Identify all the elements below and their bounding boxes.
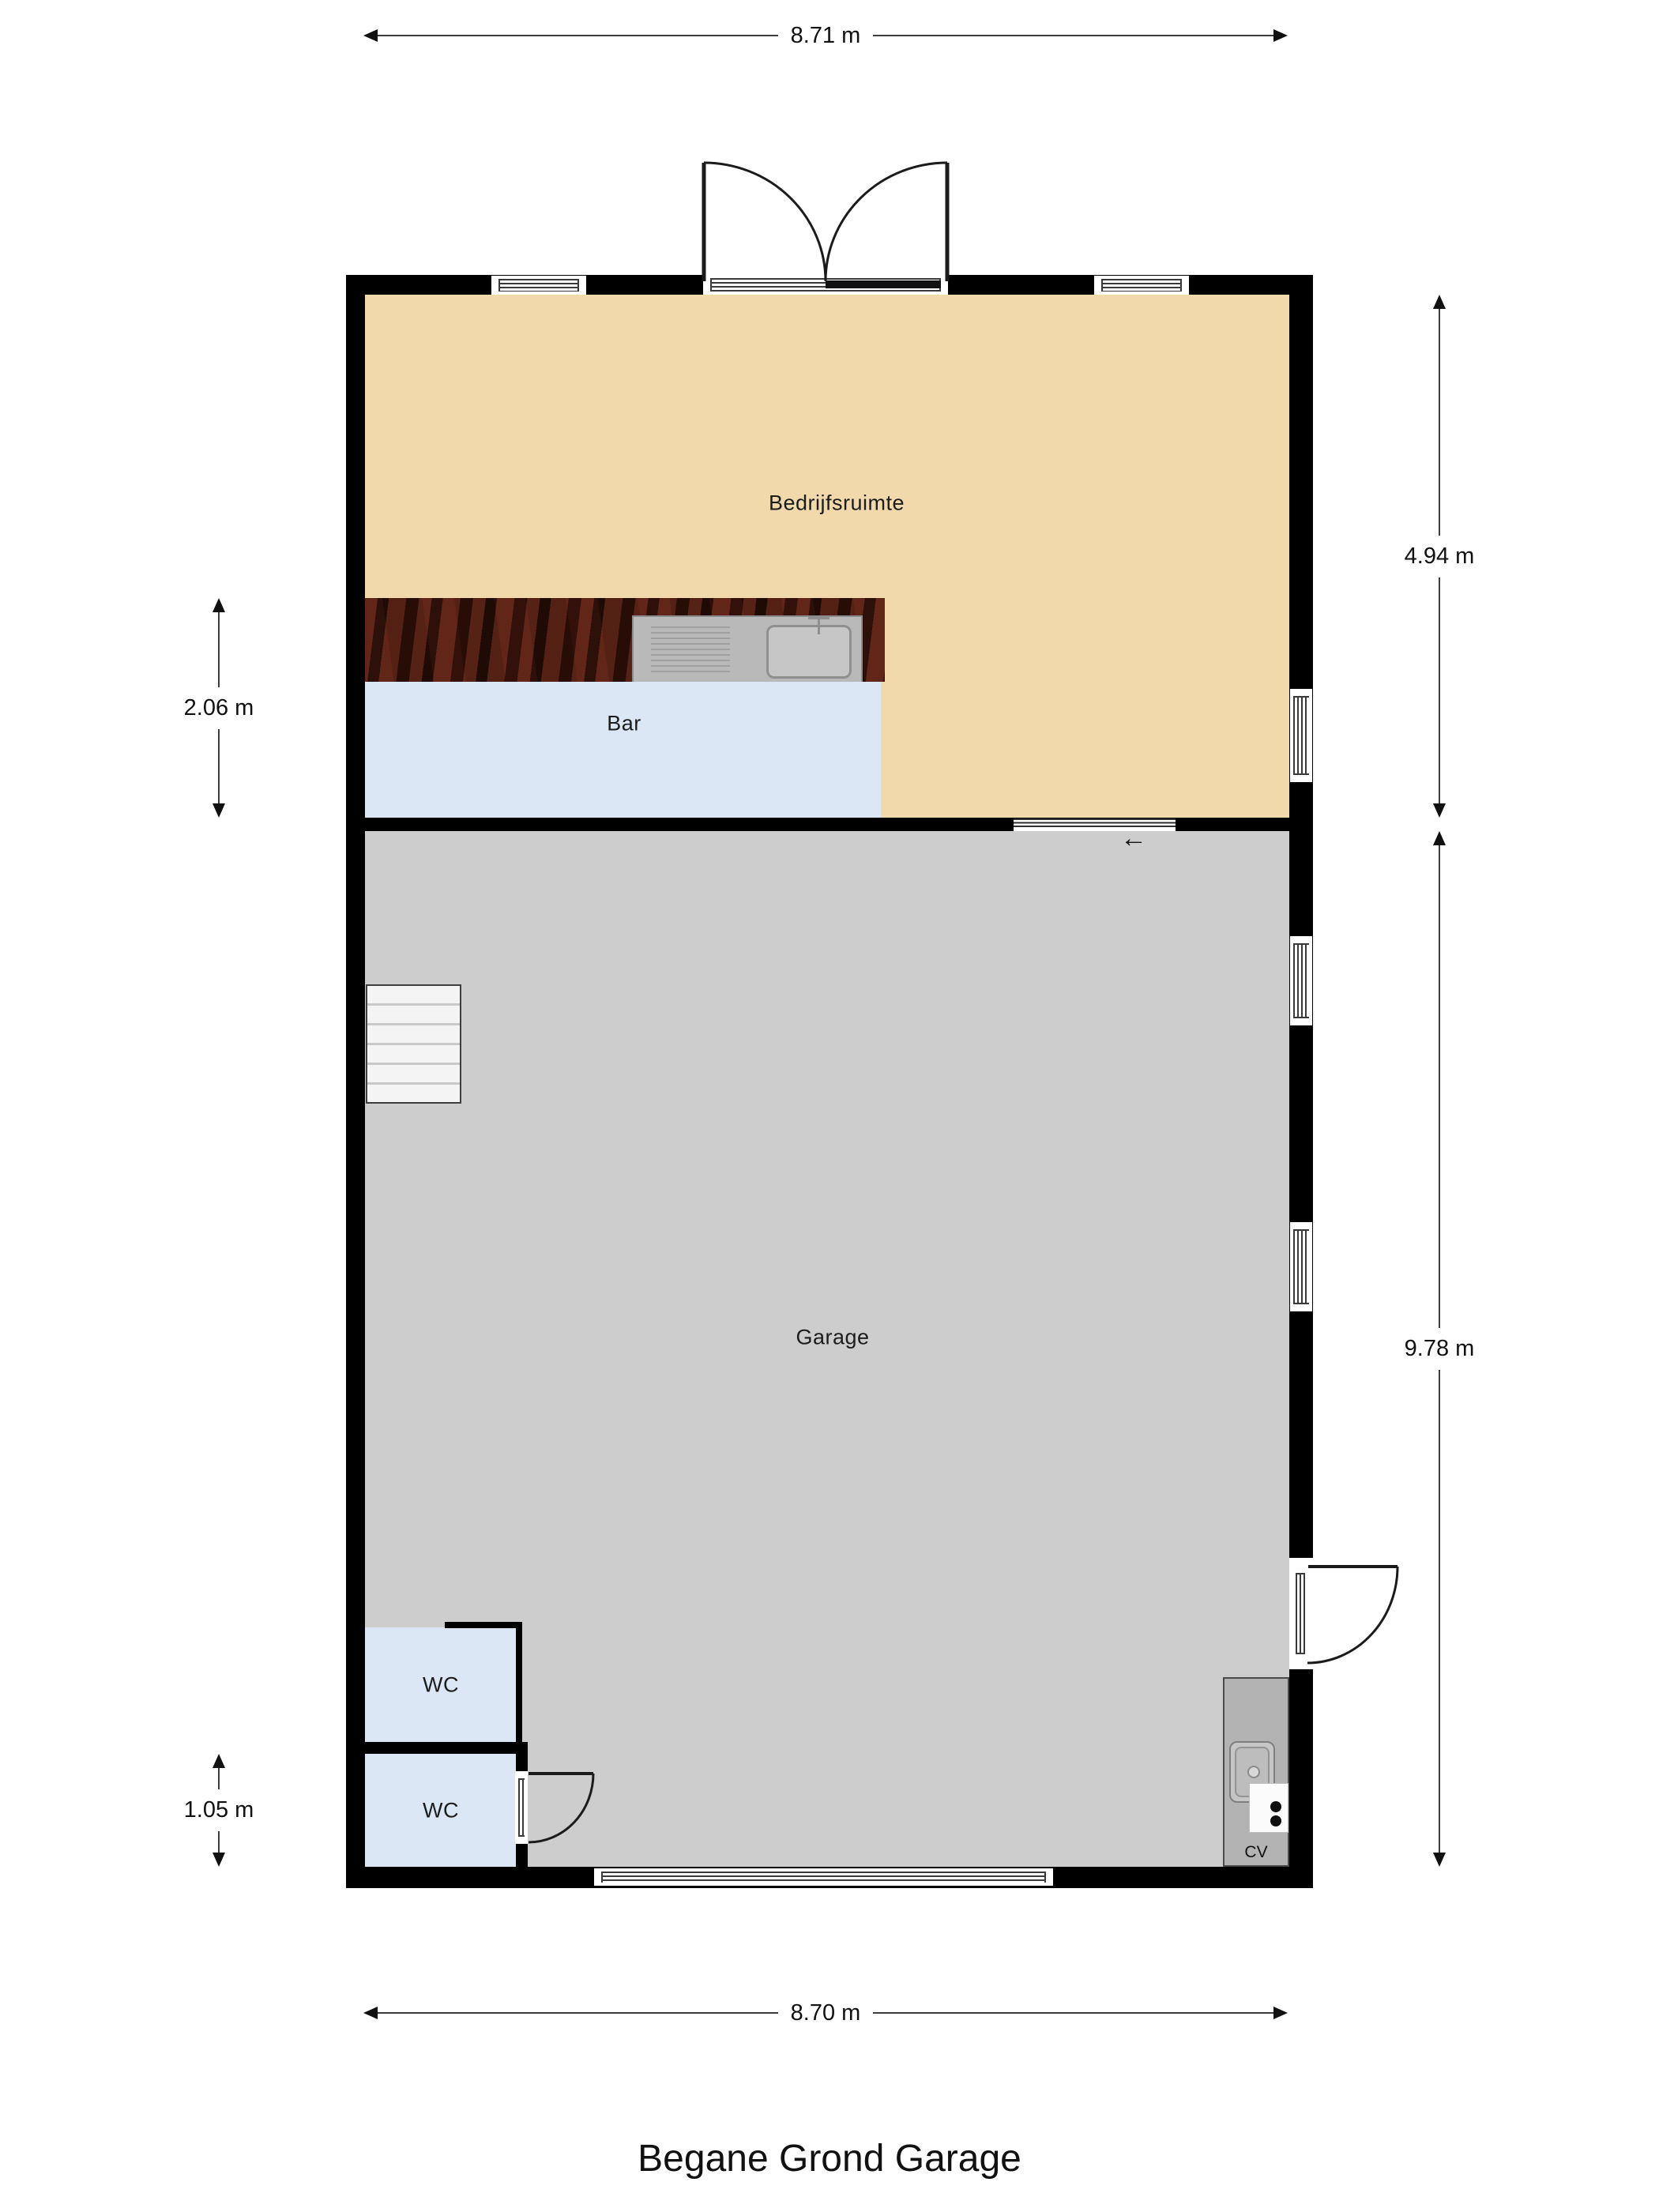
floorplan-canvas: CV ← Bedrijfsruimte Bar Garage WC WC 8.7… xyxy=(0,0,1659,2212)
wc-lower-door-jamb-bottom xyxy=(516,1844,528,1867)
room-label-wc-lower: WC xyxy=(423,1799,459,1823)
dimension-label: 2.06 m xyxy=(181,695,258,721)
wc-upper-right-wall xyxy=(516,1622,522,1742)
cv-area: CV xyxy=(1223,1677,1289,1867)
entrance-door-threshold xyxy=(703,275,948,295)
window xyxy=(594,1868,1053,1886)
window xyxy=(491,276,586,295)
room-label-bedrijfsruimte: Bedrijfsruimte xyxy=(769,491,905,516)
room-bar xyxy=(365,682,881,818)
dimension-left-wc-height: 1.05 m xyxy=(167,1754,270,1867)
wc-divider-wall xyxy=(346,1742,528,1754)
page-title: Begane Grond Garage xyxy=(0,2137,1659,2180)
window xyxy=(1290,1222,1312,1311)
window xyxy=(1094,276,1189,295)
cv-boiler-icon xyxy=(1249,1783,1288,1833)
dimension-label: 8.71 m xyxy=(791,23,861,49)
side-door-arc xyxy=(1307,1567,1398,1663)
dimension-label: 1.05 m xyxy=(181,1797,258,1823)
dimension-left-bar-height: 2.06 m xyxy=(167,598,270,818)
window xyxy=(1290,689,1312,782)
room-label-bar: Bar xyxy=(607,712,641,736)
dimension-bottom-width: 8.70 m xyxy=(363,1999,1288,2026)
wc-lower-door-jamb-top xyxy=(516,1754,528,1771)
room-label-wc-upper: WC xyxy=(423,1673,459,1698)
faucet-handle-icon xyxy=(808,617,829,619)
dimension-right-lower-height: 9.78 m xyxy=(1388,831,1491,1867)
dimension-label: 9.78 m xyxy=(1401,1336,1478,1362)
room-label-cv: CV xyxy=(1224,1843,1288,1862)
dimension-right-upper-height: 4.94 m xyxy=(1388,295,1491,818)
sliding-door-arrow-icon: ← xyxy=(1120,825,1147,852)
bar-sink-unit xyxy=(632,615,863,685)
entrance-door-closed-leaf xyxy=(826,280,941,288)
room-label-garage: Garage xyxy=(796,1326,869,1350)
entrance-door-left-arc xyxy=(704,163,826,281)
window xyxy=(1290,936,1312,1025)
entrance-door-right-arc xyxy=(826,163,947,281)
dimension-label: 8.70 m xyxy=(791,2000,861,2026)
dimension-top-width: 8.71 m xyxy=(363,22,1288,49)
side-door-frame xyxy=(1292,1566,1308,1661)
wc-lower-door-frame xyxy=(515,1771,528,1844)
wc-upper-top-wall xyxy=(445,1622,522,1628)
sliding-door-track xyxy=(1014,818,1176,831)
drainboard-icon xyxy=(651,626,730,672)
sink-bowl-icon xyxy=(766,625,852,679)
dimension-label: 4.94 m xyxy=(1401,544,1478,570)
stairs xyxy=(366,984,461,1104)
